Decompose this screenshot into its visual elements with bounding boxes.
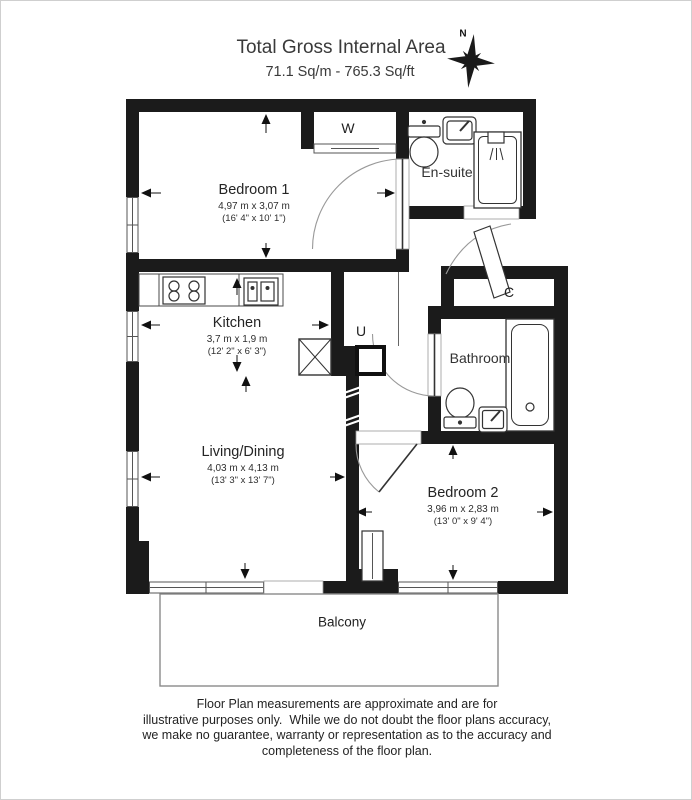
compass-icon <box>444 32 497 91</box>
shower-icon <box>474 132 521 208</box>
room-dims-m: 3,7 m x 1,9 m <box>207 334 268 346</box>
room-label-ensuite: En-suite <box>421 164 472 180</box>
wardrobe-sliding-door <box>314 144 396 153</box>
room-dims-ft: (13' 0" x 9' 4") <box>427 516 499 527</box>
bedroom2-closet <box>362 531 383 581</box>
room-label-bedroom1: Bedroom 1 4,97 m x 3,07 m (16' 4" x 10' … <box>218 182 290 224</box>
balcony-outline <box>160 594 498 686</box>
bathroom-toilet-icon <box>444 388 476 428</box>
room-name: Bedroom 1 <box>218 182 290 199</box>
room-dims-m: 3,96 m x 2,83 m <box>427 504 499 516</box>
door-openings <box>264 159 519 594</box>
room-label-bathroom: Bathroom <box>450 350 511 366</box>
disclaimer-line: completeness of the floor plan. <box>54 744 640 760</box>
window-kitchen <box>126 311 139 362</box>
room-label-bedroom2: Bedroom 2 3,96 m x 2,83 m (13' 0" x 9' 4… <box>427 485 499 527</box>
window-bedroom1 <box>126 197 139 253</box>
window-bedroom2 <box>398 581 498 594</box>
room-label-kitchen: Kitchen 3,7 m x 1,9 m (12' 2" x 6' 3") <box>207 315 268 357</box>
bathtub-icon <box>506 319 554 431</box>
window-living-balcony <box>149 581 264 594</box>
service-shaft-box <box>357 347 384 374</box>
disclaimer-text: Floor Plan measurements are approximate … <box>54 697 640 759</box>
wardrobe-label: W <box>341 120 354 136</box>
room-dims-ft: (13' 3" x 13' 7") <box>201 475 284 486</box>
room-dims-ft: (16' 4" x 10' 1") <box>218 213 290 224</box>
kitchen-sink-icon <box>244 278 278 305</box>
room-name: Bedroom 2 <box>427 485 499 502</box>
room-dims-ft: (12' 2" x 6' 3") <box>207 346 268 357</box>
ensuite-toilet-icon <box>408 121 440 168</box>
riser-shaft-x <box>299 339 331 375</box>
compass-north-label: N <box>459 29 466 40</box>
room-label-balcony: Balcony <box>318 615 366 630</box>
door-entrance <box>446 224 511 298</box>
ensuite-basin-icon <box>443 117 476 144</box>
disclaimer-line: we make no guarantee, warranty or repres… <box>54 728 640 744</box>
room-label-living-dining: Living/Dining 4,03 m x 4,13 m (13' 3" x … <box>201 444 284 486</box>
page-subtitle: 71.1 Sq/m - 765.3 Sq/ft <box>265 64 414 80</box>
room-name: Living/Dining <box>201 444 284 461</box>
disclaimer-line: Floor Plan measurements are approximate … <box>54 697 640 713</box>
door-bedroom1 <box>313 159 403 249</box>
windows <box>126 197 498 594</box>
page-title: Total Gross Internal Area <box>236 37 445 59</box>
room-dims-m: 4,03 m x 4,13 m <box>201 463 284 475</box>
utility-label: U <box>356 323 366 339</box>
hob-icon <box>163 277 205 304</box>
door-bedroom2 <box>356 444 417 492</box>
floorplan-page: Total Gross Internal Area 71.1 Sq/m - 76… <box>0 0 692 800</box>
room-dims-m: 4,97 m x 3,07 m <box>218 201 290 213</box>
disclaimer-line: illustrative purposes only. While we do … <box>54 713 640 729</box>
bathroom-basin-icon <box>479 407 507 432</box>
room-name: Kitchen <box>207 315 268 332</box>
window-living <box>126 451 139 507</box>
cupboard-label: C <box>504 284 514 300</box>
